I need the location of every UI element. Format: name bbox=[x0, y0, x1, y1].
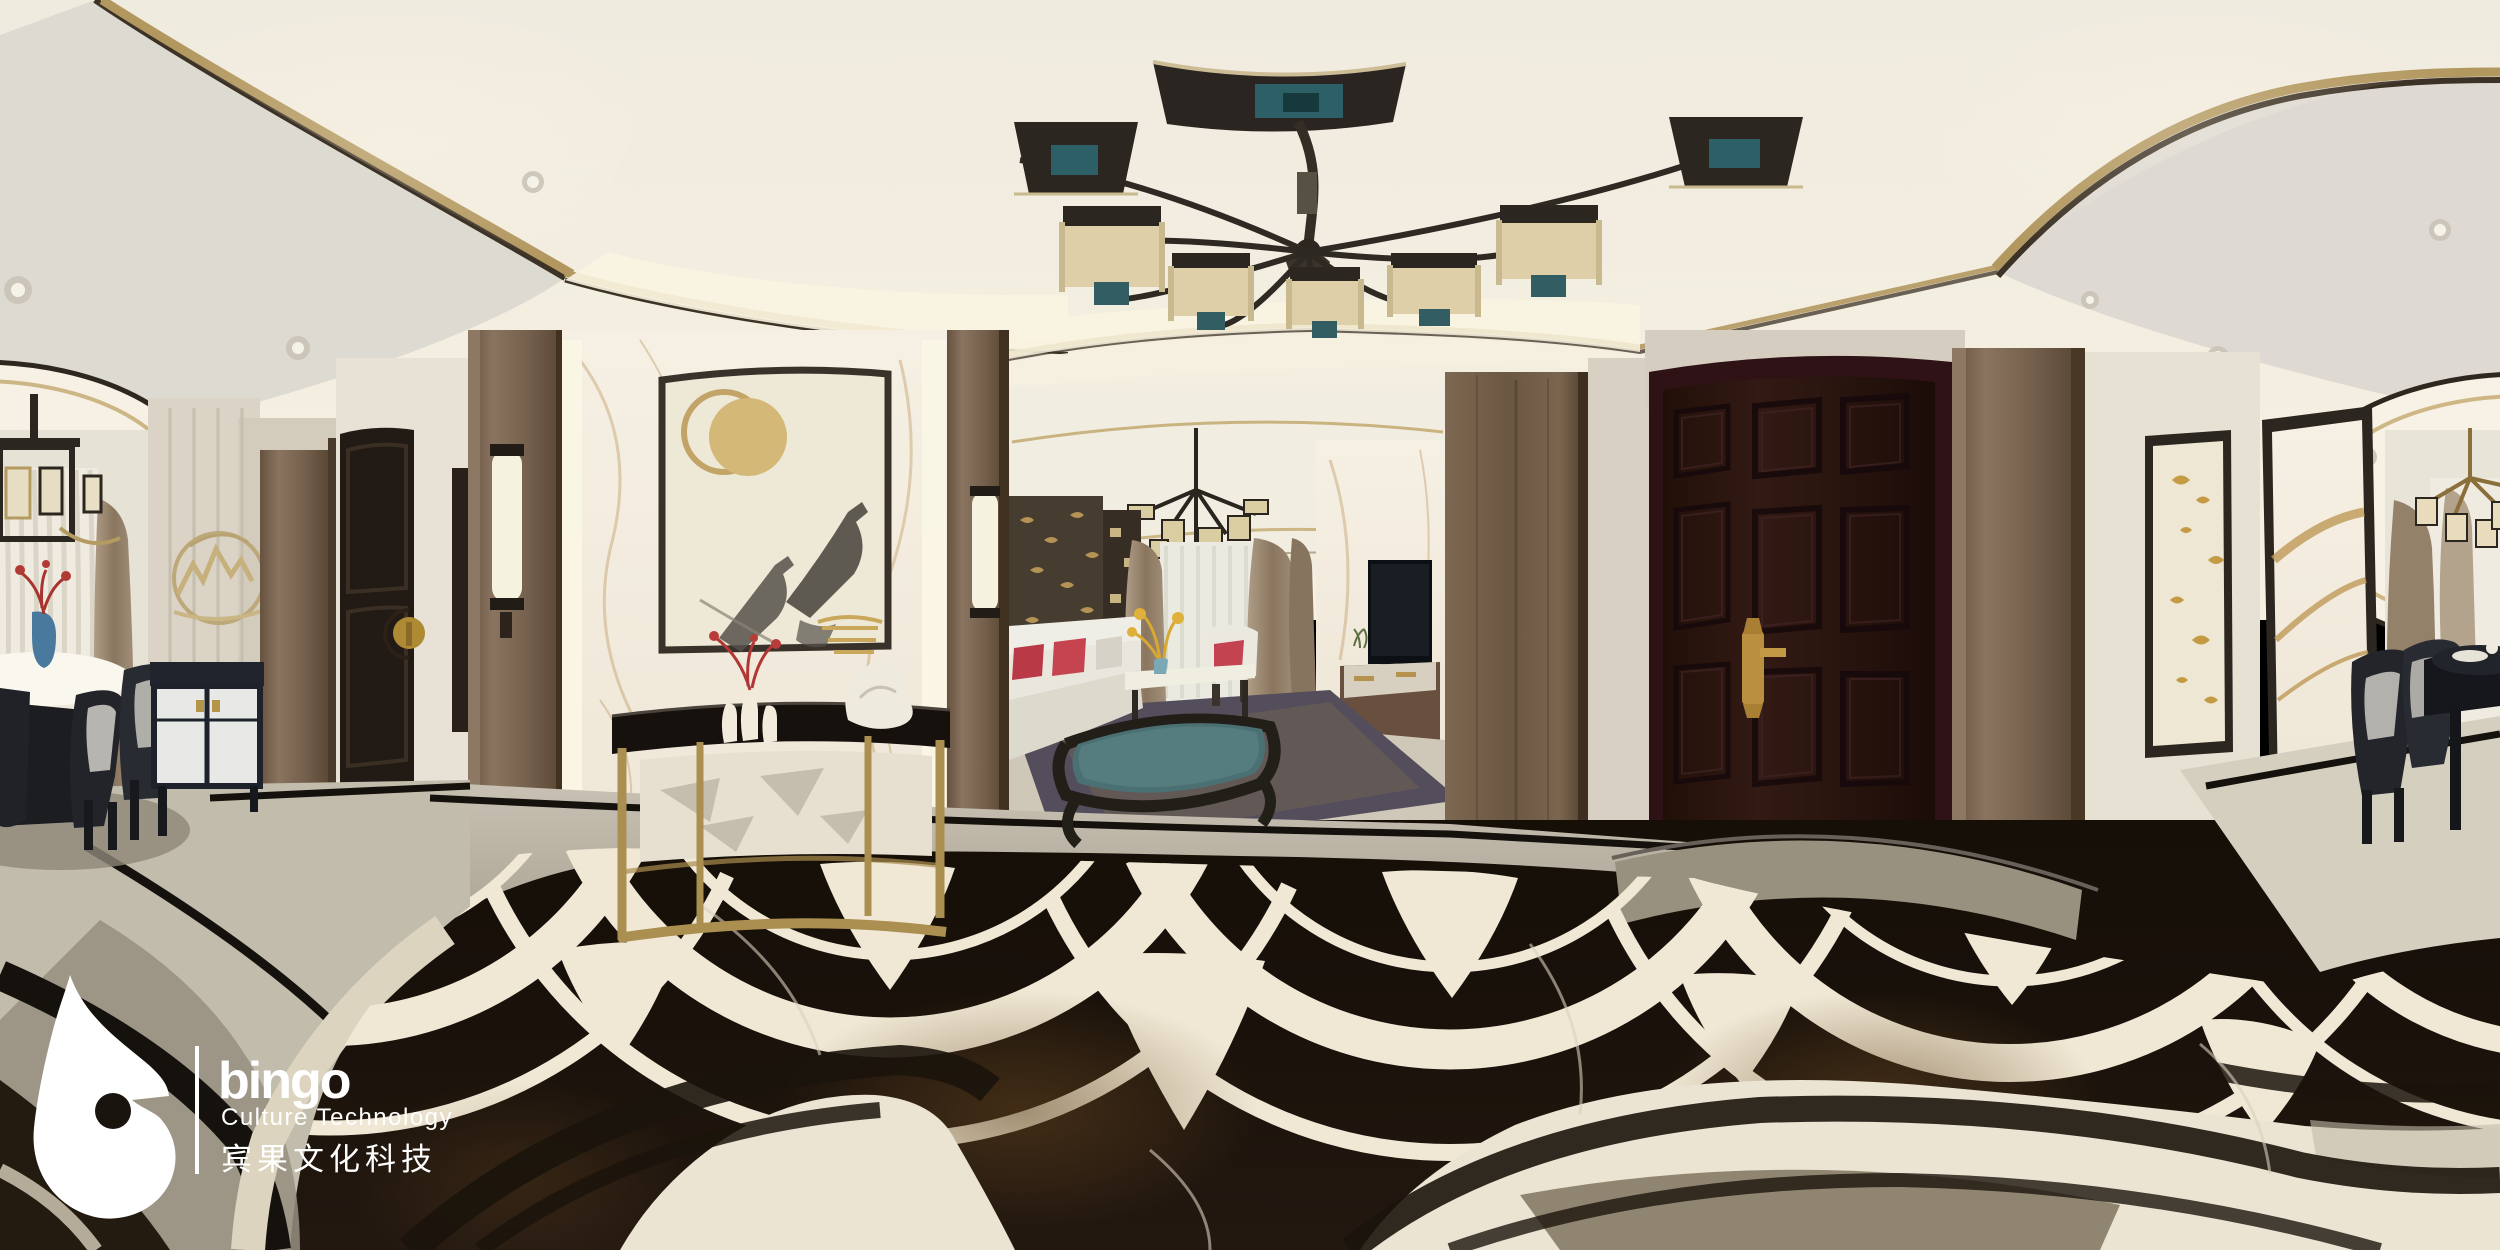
svg-text:Culture Technology: Culture Technology bbox=[221, 1104, 453, 1131]
svg-text:bingo: bingo bbox=[218, 1052, 350, 1110]
svg-text:宾果文化科技: 宾果文化科技 bbox=[221, 1142, 437, 1177]
